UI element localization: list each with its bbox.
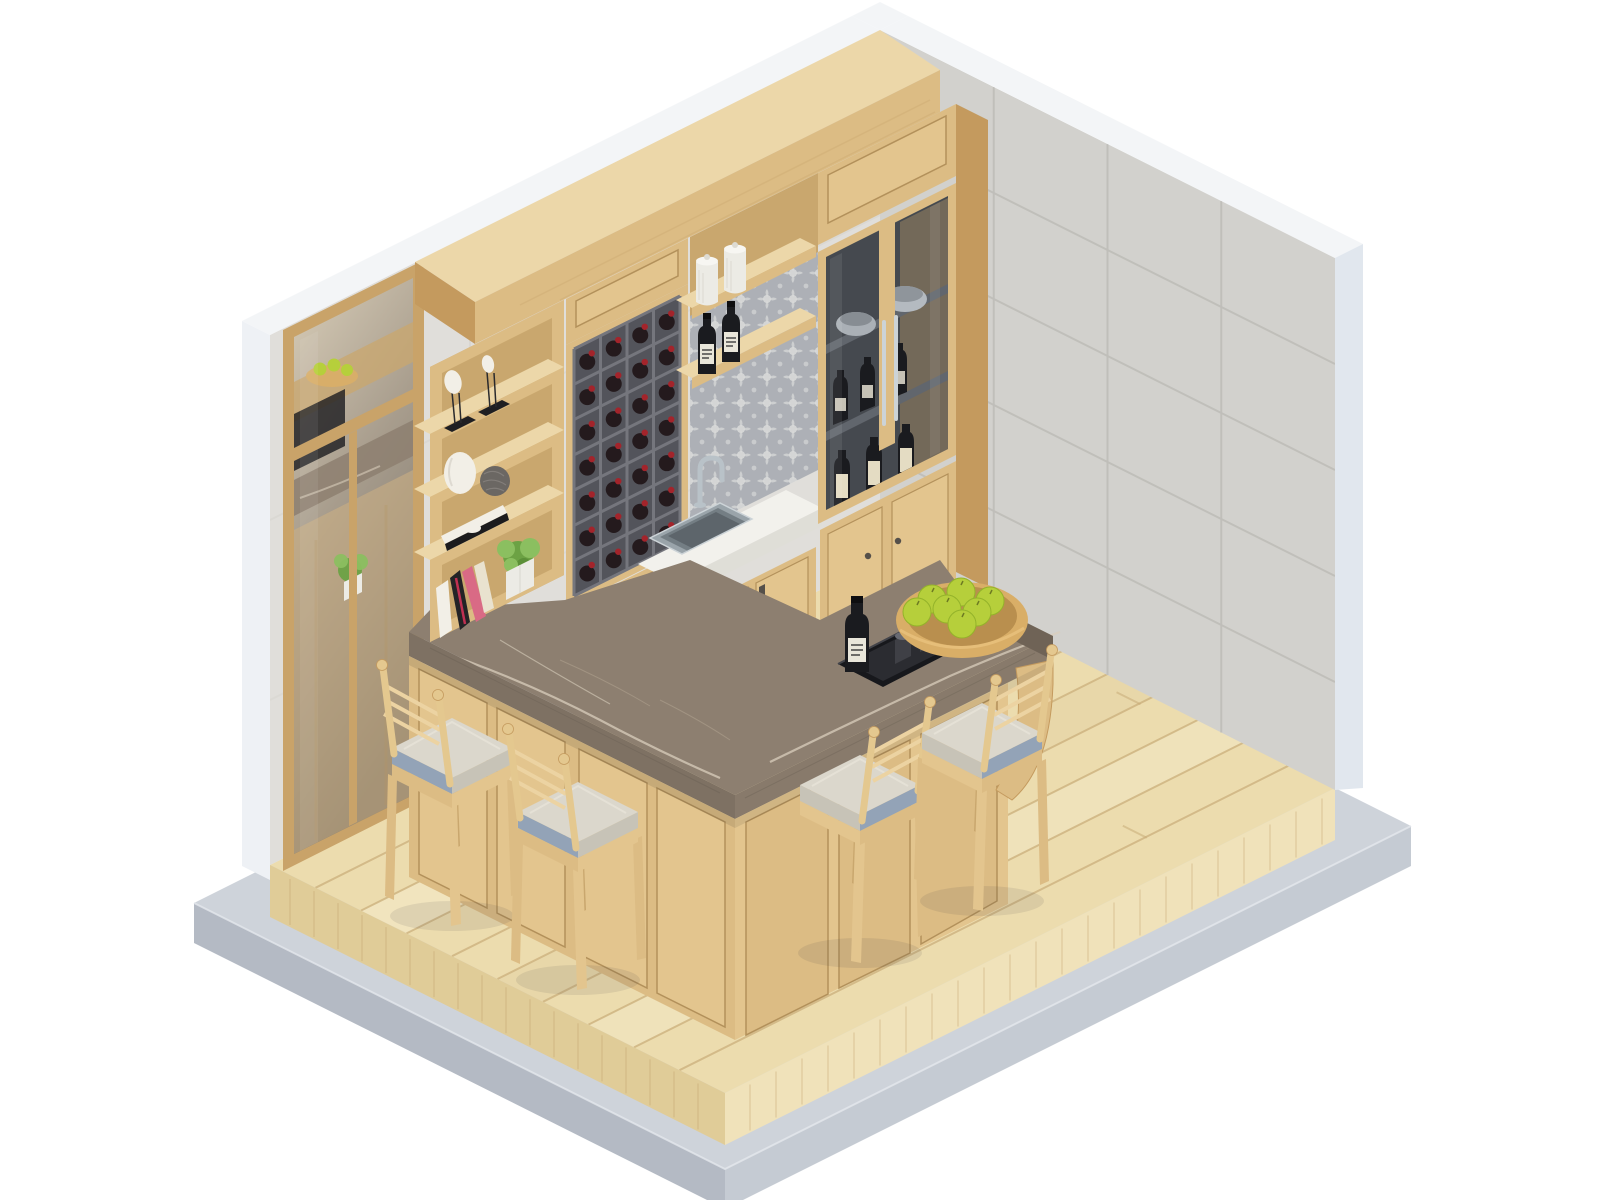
isometric-bar-room — [0, 0, 1600, 1200]
glass-cabinet — [818, 104, 988, 649]
render-canvas — [0, 0, 1600, 1200]
